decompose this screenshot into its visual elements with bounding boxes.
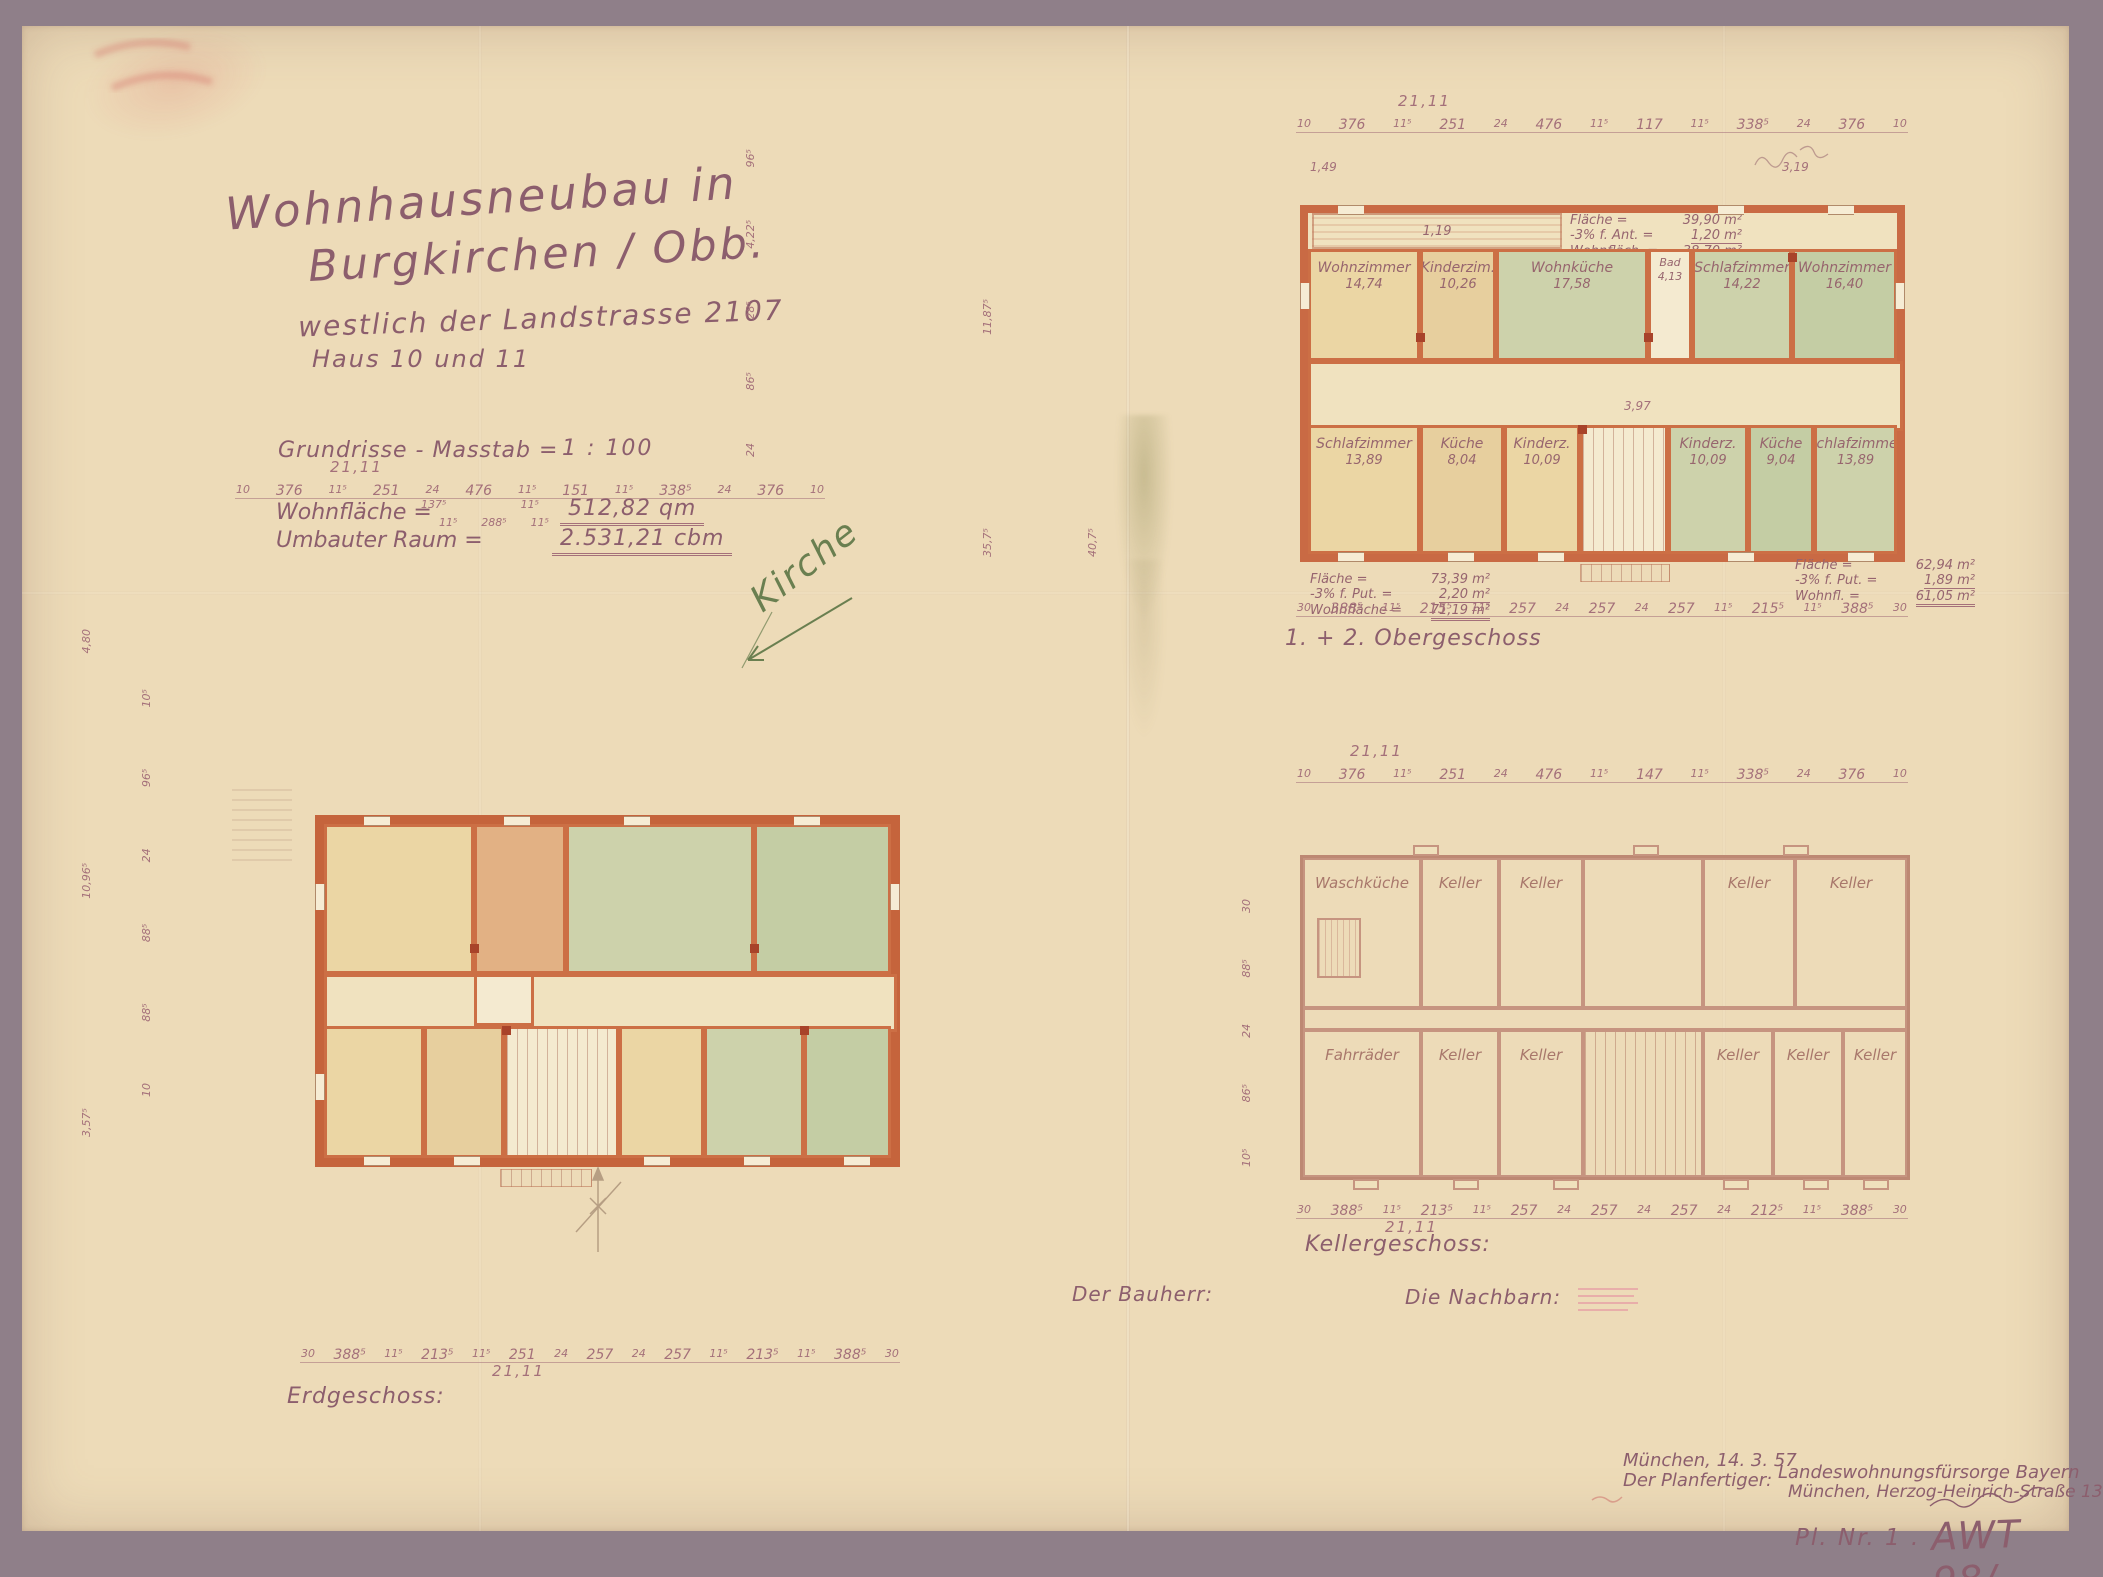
room-area: 10,26 — [1439, 277, 1476, 292]
room-area: 14,22 — [1723, 277, 1760, 292]
dimension-value: 24 — [1556, 1204, 1572, 1215]
room-wohnzimmer: Wohnzimmer14,74 — [1308, 249, 1420, 361]
window-marker — [1538, 552, 1564, 562]
stain — [1122, 560, 1166, 740]
stat-row: -3% f. Put. =1,89 m² — [1795, 573, 1975, 589]
room-label: Waschküche — [1315, 874, 1409, 892]
dimension-value: 24 — [631, 1348, 647, 1359]
light-well — [1353, 1179, 1379, 1190]
dimension-value: 11⁵ — [1589, 118, 1609, 129]
dimension-value: 476 — [1534, 768, 1563, 782]
kg-dim-chain-top: 1037611⁵2512447611⁵14711⁵338⁵2437610 — [1296, 762, 1908, 783]
dimension-value: 11⁵ — [383, 1348, 403, 1359]
dimension-value: 213⁵ — [1420, 1204, 1454, 1218]
room-area: 9,04 — [1767, 453, 1796, 468]
scale-label: Grundrisse - Masstab = — [278, 438, 558, 463]
dimension-value: 10 — [235, 484, 251, 495]
window-marker — [1728, 552, 1754, 562]
stairwell — [1583, 1030, 1703, 1177]
og-corner-dim-right: 3,19 — [1782, 160, 1809, 174]
chimney-marker — [800, 1026, 809, 1035]
dimension-value: 10 — [1892, 768, 1908, 779]
dimension-value: 30 — [1296, 1204, 1312, 1215]
dimension-value: 24 — [1634, 602, 1650, 613]
room-keller: Keller — [1421, 858, 1499, 1008]
window-marker — [1895, 283, 1905, 309]
dimension-value: 151 — [561, 484, 590, 498]
dimension-value: 88⁵ — [1241, 958, 1252, 978]
dimension-value: 147 — [1635, 768, 1664, 782]
window-marker — [315, 1074, 325, 1100]
eg-dim-sub1: 137⁵11⁵ — [420, 494, 540, 510]
dimension-value: 11⁵ — [1690, 768, 1710, 779]
dimension-value: 10 — [809, 484, 825, 495]
room-label: Keller — [1439, 1046, 1481, 1064]
room — [474, 824, 566, 974]
dimension-value: 30 — [300, 1348, 316, 1359]
stat-label: -3% f. Put. = — [1795, 573, 1877, 589]
chimney-marker — [1416, 333, 1425, 342]
chimney-marker — [1644, 333, 1653, 342]
chimney-marker — [750, 944, 759, 953]
dimension-value: 40,7⁵ — [1087, 527, 1098, 558]
room — [754, 824, 891, 974]
window-marker — [794, 816, 820, 826]
dimension-value: 3,57⁵ — [81, 1107, 92, 1138]
window-marker — [844, 1156, 870, 1166]
room-keller: Keller — [1499, 858, 1583, 1008]
light-well — [1863, 1179, 1889, 1190]
corridor — [324, 974, 897, 1032]
room-area: 10,09 — [1523, 453, 1560, 468]
dimension-value: 30 — [884, 1348, 900, 1359]
room-label: Keller — [1439, 874, 1481, 892]
dimension-value: 11⁵ — [1472, 1204, 1492, 1215]
eg-overall-dim: 21,11 — [330, 458, 383, 476]
dimension-value: 10 — [1296, 118, 1312, 129]
dimension-value: 251 — [1438, 768, 1467, 782]
room-fahrraeder: Fahrräder — [1303, 1030, 1421, 1177]
stat-row: Fläche =39,90 m² — [1570, 213, 1742, 228]
washtub-fixture — [1317, 918, 1361, 978]
window-marker — [1828, 205, 1854, 215]
dimension-value: 10⁵ — [1241, 1148, 1252, 1168]
dimension-value: 11⁵ — [1713, 602, 1733, 613]
room-label: Kinderz. — [1680, 436, 1737, 452]
light-well — [1783, 845, 1809, 856]
room-label: Keller — [1830, 874, 1872, 892]
dimension-value: 88⁵ — [141, 1002, 152, 1022]
window-marker — [364, 816, 390, 826]
stat-value: 73,39 m² — [1431, 572, 1490, 587]
og-vdim-near: 35,7⁵11,87⁵ — [977, 298, 993, 558]
room-label: Schlafzimmer — [1814, 436, 1897, 452]
room-kueche: Küche9,04 — [1748, 425, 1814, 554]
dimension-value: 338⁵ — [1736, 118, 1770, 132]
dimension-value: 86⁵ — [745, 371, 756, 391]
room — [324, 824, 474, 974]
dimension-value: 24 — [1241, 1023, 1252, 1039]
room-wohnkueche: Wohnküche17,58 — [1496, 249, 1648, 361]
dimension-value: 11⁵ — [708, 1348, 728, 1359]
og-plan-label: 1. + 2. Obergeschoss — [1285, 626, 1542, 651]
kg-plan-label: Kellergeschoss: — [1305, 1232, 1491, 1257]
room-area: 8,04 — [1448, 453, 1477, 468]
room-label: Wohnzimmer — [1317, 260, 1410, 276]
window-marker — [624, 816, 650, 826]
stat-label: Fläche = — [1570, 213, 1627, 228]
room-keller: Keller — [1421, 1030, 1499, 1177]
dimension-value: 476 — [1534, 118, 1563, 132]
nachbarn-signature-label: Die Nachbarn: — [1405, 1285, 1561, 1309]
room-label: Keller — [1854, 1046, 1896, 1064]
stat-row: -3% f. Ant. =1,20 m² — [1570, 228, 1742, 244]
room-keller: Keller — [1843, 1030, 1907, 1177]
dimension-value: 4,22⁵ — [745, 219, 756, 250]
room-area: 4,13 — [1658, 270, 1683, 283]
window-marker — [644, 1156, 670, 1166]
room — [804, 1026, 891, 1158]
kg-vdim: 10⁵86⁵2488⁵30 — [1236, 898, 1252, 1168]
window-marker — [1338, 552, 1364, 562]
scale-value: 1 : 100 — [562, 436, 653, 461]
dimension-value: 257 — [1590, 1204, 1619, 1218]
stat-label: -3% f. Ant. = — [1570, 228, 1653, 244]
light-well — [1453, 1179, 1479, 1190]
dimension-value: 24 — [1796, 768, 1812, 779]
stairwell — [1580, 425, 1668, 554]
room-label: Kinderzim. — [1421, 260, 1496, 276]
floorplan-obergeschoss: 1,19 Fläche =39,90 m² -3% f. Ant. =1,20 … — [1300, 205, 1905, 562]
dimension-value: 213⁵ — [745, 1348, 779, 1362]
chimney-marker — [1578, 425, 1587, 434]
stat-value: 62,94 m² — [1916, 558, 1975, 573]
stat-value: 1,20 m² — [1691, 228, 1742, 244]
dimension-value: 137⁵ — [420, 499, 447, 510]
living-area-label: Wohnfläche = — [276, 500, 432, 525]
chimney-marker — [1788, 253, 1797, 262]
stat-label: Fläche = — [1795, 558, 1852, 573]
dimension-value: 24 — [1636, 1204, 1652, 1215]
window-marker — [364, 1156, 390, 1166]
dimension-value: 288⁵ — [480, 517, 507, 528]
dimension-value: 388⁵ — [1840, 1204, 1874, 1218]
living-area-value: 512,82 qm — [560, 496, 704, 526]
room-keller: Keller — [1795, 858, 1907, 1008]
dimension-value: 30 — [1296, 602, 1312, 613]
eg-vdim1: 3,57⁵10,96⁵4,80 — [76, 628, 92, 1138]
floorplan-erdgeschoss — [315, 815, 900, 1167]
room — [324, 1026, 424, 1158]
window-marker — [454, 1156, 480, 1166]
footer-city-date: München, 14. 3. 57 — [1623, 1450, 1797, 1471]
dimension-value: 338⁵ — [1736, 768, 1770, 782]
footer-org-line1: Landeswohnungsfürsorge Bayern — [1778, 1462, 2080, 1483]
dimension-value: 388⁵ — [1840, 602, 1874, 616]
dimension-value: 24 — [1554, 602, 1570, 613]
room — [566, 824, 754, 974]
fold-line — [22, 591, 2069, 595]
dimension-value: 257 — [586, 1348, 615, 1362]
room — [424, 1026, 504, 1158]
footer-org-line2: München, Herzog-Heinrich-Straße 13 — [1788, 1482, 2103, 1502]
og-vdim-far: 2486⁵28⁵4,22⁵96⁵ — [740, 148, 756, 458]
dimension-value: 4,80 — [81, 628, 92, 655]
dimension-value: 10,96⁵ — [81, 862, 92, 900]
kg-overall-dim-top: 21,11 — [1350, 742, 1403, 760]
window-marker — [1300, 283, 1310, 309]
room-bad: Bad4,13 — [1648, 249, 1692, 361]
dimension-value: 388⁵ — [1330, 1204, 1364, 1218]
room-label: Keller — [1787, 1046, 1829, 1064]
dimension-value: 257 — [1667, 602, 1696, 616]
dimension-value: 11⁵ — [1690, 118, 1710, 129]
dimension-value: 11⁵ — [520, 499, 540, 510]
window-marker — [315, 884, 325, 910]
room-area: 17,58 — [1553, 277, 1590, 292]
dimension-value: 24 — [1716, 1204, 1732, 1215]
loggia: 1,19 — [1312, 213, 1562, 249]
window-marker — [1448, 552, 1474, 562]
dimension-value: 11⁵ — [614, 484, 634, 495]
room-kinderzimmer: Kinderzim.10,26 — [1420, 249, 1496, 361]
room-area: 13,89 — [1837, 453, 1874, 468]
eg-overall-dim-bottom: 21,11 — [492, 1362, 545, 1380]
dimension-value: 212⁵ — [1750, 1204, 1784, 1218]
dimension-value: 10 — [141, 1082, 152, 1098]
room-label: Keller — [1717, 1046, 1759, 1064]
room-schlafzimmer: Schlafzimmer14,22 — [1692, 249, 1792, 361]
dimension-value: 30 — [1892, 1204, 1908, 1215]
window-marker — [1338, 205, 1364, 215]
dimension-value: 11⁵ — [530, 517, 550, 528]
room-schlafzimmer: Schlafzimmer13,89 — [1814, 425, 1897, 554]
chimney-marker — [502, 1026, 511, 1035]
dimension-value: 251 — [372, 484, 401, 498]
dimension-value: 10⁵ — [141, 688, 152, 708]
dimension-value: 11⁵ — [1802, 1204, 1822, 1215]
eg-dim-sub2: 11⁵288⁵11⁵ — [438, 512, 550, 528]
plan-number: Pl. Nr. 1 . — [1795, 1525, 1920, 1551]
dimension-value: 11⁵ — [1392, 768, 1412, 779]
dimension-value: 11⁵ — [471, 1348, 491, 1359]
room-kueche: Küche8,04 — [1420, 425, 1504, 554]
dimension-value: 11⁵ — [796, 1348, 816, 1359]
room-label: Küche — [1441, 436, 1484, 452]
dimension-value: 24 — [1493, 768, 1509, 779]
dimension-value: 30 — [1241, 898, 1252, 914]
loggia-dim: 1,19 — [1423, 224, 1452, 239]
dimension-value: 11,87⁵ — [982, 298, 993, 336]
chimney-marker — [470, 944, 479, 953]
dimension-value: 96⁵ — [141, 768, 152, 788]
room-label: Keller — [1520, 874, 1562, 892]
room-label: Bad — [1659, 256, 1680, 269]
dimension-value: 88⁵ — [141, 923, 152, 943]
stat-value: 61,05 m² — [1916, 589, 1975, 607]
dimension-value: 376 — [1837, 768, 1866, 782]
stat-row: Fläche =73,39 m² — [1310, 572, 1490, 587]
dimension-value: 11⁵ — [1381, 602, 1401, 613]
dimension-value: 24 — [1493, 118, 1509, 129]
room-kinderzimmer: Kinderz.10,09 — [1504, 425, 1580, 554]
dimension-value: 11⁵ — [1802, 602, 1822, 613]
dimension-value: 10 — [1892, 118, 1908, 129]
dimension-value: 257 — [1510, 1204, 1539, 1218]
dimension-value: 388⁵ — [332, 1348, 366, 1362]
room — [704, 1026, 804, 1158]
bauherr-signature-label: Der Bauherr: — [1072, 1282, 1213, 1306]
plan-code: AWT 98/10,11 — [1931, 1509, 2103, 1577]
dimension-value: 376 — [1338, 768, 1367, 782]
entrance-steps — [500, 1169, 592, 1187]
og-vdim-near2: 40,7⁵ — [1082, 318, 1098, 558]
dimension-value: 257 — [1508, 602, 1537, 616]
dimension-value: 376 — [756, 484, 785, 498]
light-well — [1723, 1179, 1749, 1190]
room-label: Keller — [1520, 1046, 1562, 1064]
window-marker — [744, 1156, 770, 1166]
light-well — [1413, 845, 1439, 856]
dimension-value: 30 — [1892, 602, 1908, 613]
dimension-value: 24 — [716, 484, 732, 495]
og-dim-chain-bottom: 30388⁵11⁵215⁵11⁵257242572425711⁵215⁵11⁵3… — [1296, 596, 1908, 617]
room-label: Schlafzimmer — [1316, 436, 1412, 452]
dimension-value: 11⁵ — [1382, 1204, 1402, 1215]
dimension-value: 35,7⁵ — [982, 527, 993, 558]
stat-label: Fläche = — [1310, 572, 1367, 587]
room-label: Wohnzimmer — [1798, 260, 1891, 276]
dimension-value: 257 — [1670, 1204, 1699, 1218]
footer-planfertiger-label: Der Planfertiger: — [1623, 1470, 1772, 1491]
window-marker — [504, 816, 530, 826]
room-wohnzimmer: Wohnzimmer16,40 — [1792, 249, 1897, 361]
room-label: Schlafzimmer — [1694, 260, 1790, 276]
room-kinderzimmer: Kinderz.10,09 — [1668, 425, 1748, 554]
dimension-value: 11⁵ — [328, 484, 348, 495]
hall-dim: 3,97 — [1624, 399, 1651, 413]
volume-value: 2.531,21 cbm — [552, 526, 732, 556]
stat-value: 1,89 m² — [1924, 573, 1975, 589]
dimension-value: 257 — [1588, 602, 1617, 616]
dimension-value: 10 — [1296, 768, 1312, 779]
window-marker — [890, 884, 900, 910]
corridor — [1583, 858, 1703, 1008]
room-area: 14,74 — [1345, 277, 1382, 292]
og-overall-dim: 21,11 — [1398, 92, 1451, 110]
room-label: Keller — [1728, 874, 1770, 892]
dimension-value: 215⁵ — [1751, 602, 1785, 616]
window-marker — [1718, 205, 1744, 215]
room-label: Fahrräder — [1325, 1046, 1399, 1064]
room-label: Wohnküche — [1531, 260, 1613, 276]
dimension-value: 11⁵ — [438, 517, 458, 528]
dimension-value: 117 — [1635, 118, 1664, 132]
dimension-value: 24 — [1796, 118, 1812, 129]
dimension-value: 338⁵ — [658, 484, 692, 498]
houses-label: Haus 10 und 11 — [312, 345, 530, 373]
eg-dim-chain-bottom: 30388⁵11⁵213⁵11⁵251242572425711⁵213⁵11⁵3… — [300, 1342, 900, 1363]
dimension-value: 28⁵ — [745, 300, 756, 320]
room-bad — [474, 974, 534, 1026]
room-area: 13,89 — [1345, 453, 1382, 468]
light-well — [1553, 1179, 1579, 1190]
room-label: Kinderz. — [1514, 436, 1571, 452]
room-keller: Keller — [1703, 1030, 1773, 1177]
dimension-value: 376 — [1837, 118, 1866, 132]
plan-code-main: AWT 98/ — [1931, 1512, 2022, 1577]
dimension-value: 213⁵ — [420, 1348, 454, 1362]
dimension-value: 11⁵ — [1392, 118, 1412, 129]
dimension-value: 376 — [1338, 118, 1367, 132]
dimension-value: 24 — [141, 847, 152, 863]
dimension-value: 251 — [508, 1348, 537, 1362]
dimension-value: 251 — [1438, 118, 1467, 132]
corridor — [1308, 361, 1903, 431]
dimension-value: 215⁵ — [1419, 602, 1453, 616]
room-keller: Keller — [1703, 858, 1795, 1008]
eg-vdim2: 1088⁵88⁵2496⁵10⁵ — [136, 688, 152, 1098]
floorplan-kellergeschoss: Waschküche Keller Keller Keller Keller F… — [1300, 855, 1910, 1180]
room — [619, 1026, 704, 1158]
dimension-value: 11⁵ — [1589, 768, 1609, 779]
dimension-value: 388⁵ — [833, 1348, 867, 1362]
light-well — [1803, 1179, 1829, 1190]
stat-value: 39,90 m² — [1683, 213, 1742, 228]
corridor — [1303, 1008, 1907, 1030]
eg-plan-label: Erdgeschoss: — [287, 1384, 445, 1409]
dimension-value: 86⁵ — [1241, 1083, 1252, 1103]
light-well — [1633, 845, 1659, 856]
og-corner-dim-left: 1,49 — [1310, 160, 1337, 174]
og-dim-chain-top: 1037611⁵2512447611⁵11711⁵338⁵2437610 — [1296, 112, 1908, 133]
room-keller: Keller — [1773, 1030, 1843, 1177]
entrance-steps — [1580, 564, 1670, 582]
volume-label: Umbauter Raum = — [276, 528, 483, 553]
room-keller: Keller — [1499, 1030, 1583, 1177]
dimension-value: 376 — [275, 484, 304, 498]
room-area: 10,09 — [1689, 453, 1726, 468]
dimension-value: 96⁵ — [745, 148, 756, 168]
dimension-value: 24 — [553, 1348, 569, 1359]
room-label: Küche — [1760, 436, 1803, 452]
room-schlafzimmer: Schlafzimmer13,89 — [1308, 425, 1420, 554]
stairwell — [504, 1026, 619, 1158]
dimension-value: 257 — [663, 1348, 692, 1362]
blueprint-sheet: Wohnhausneubau in Burgkirchen / Obb. wes… — [0, 0, 2103, 1577]
dimension-value: 388⁵ — [1329, 602, 1363, 616]
dimension-value: 11⁵ — [1470, 602, 1490, 613]
stat-row: Fläche =62,94 m² — [1795, 558, 1975, 573]
dimension-value: 24 — [745, 442, 756, 458]
room-area: 16,40 — [1826, 277, 1863, 292]
kg-dim-chain-bottom: 30388⁵11⁵213⁵11⁵257242572425724212⁵11⁵38… — [1296, 1198, 1908, 1219]
